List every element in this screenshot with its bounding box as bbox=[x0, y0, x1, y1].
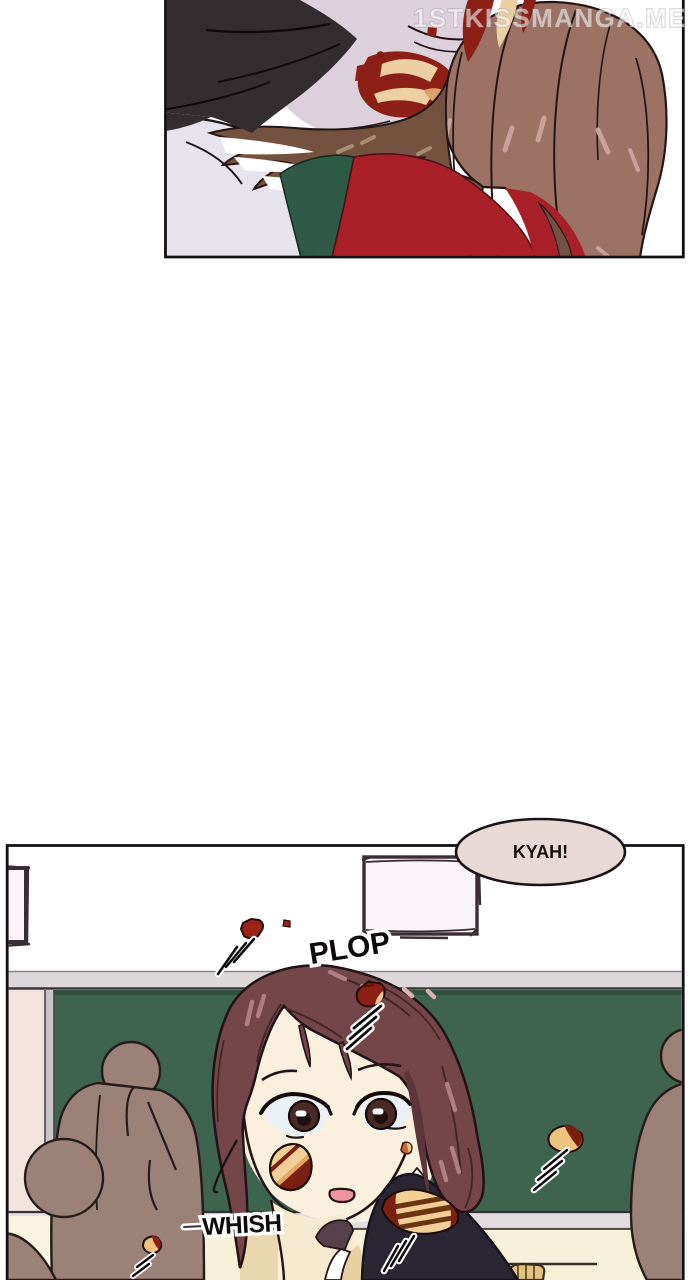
svg-text:WHISH: WHISH bbox=[202, 1210, 282, 1241]
svg-text:KYAH!: KYAH! bbox=[513, 842, 568, 862]
svg-text:1STKISSMANGA.ME: 1STKISSMANGA.ME bbox=[413, 3, 687, 33]
